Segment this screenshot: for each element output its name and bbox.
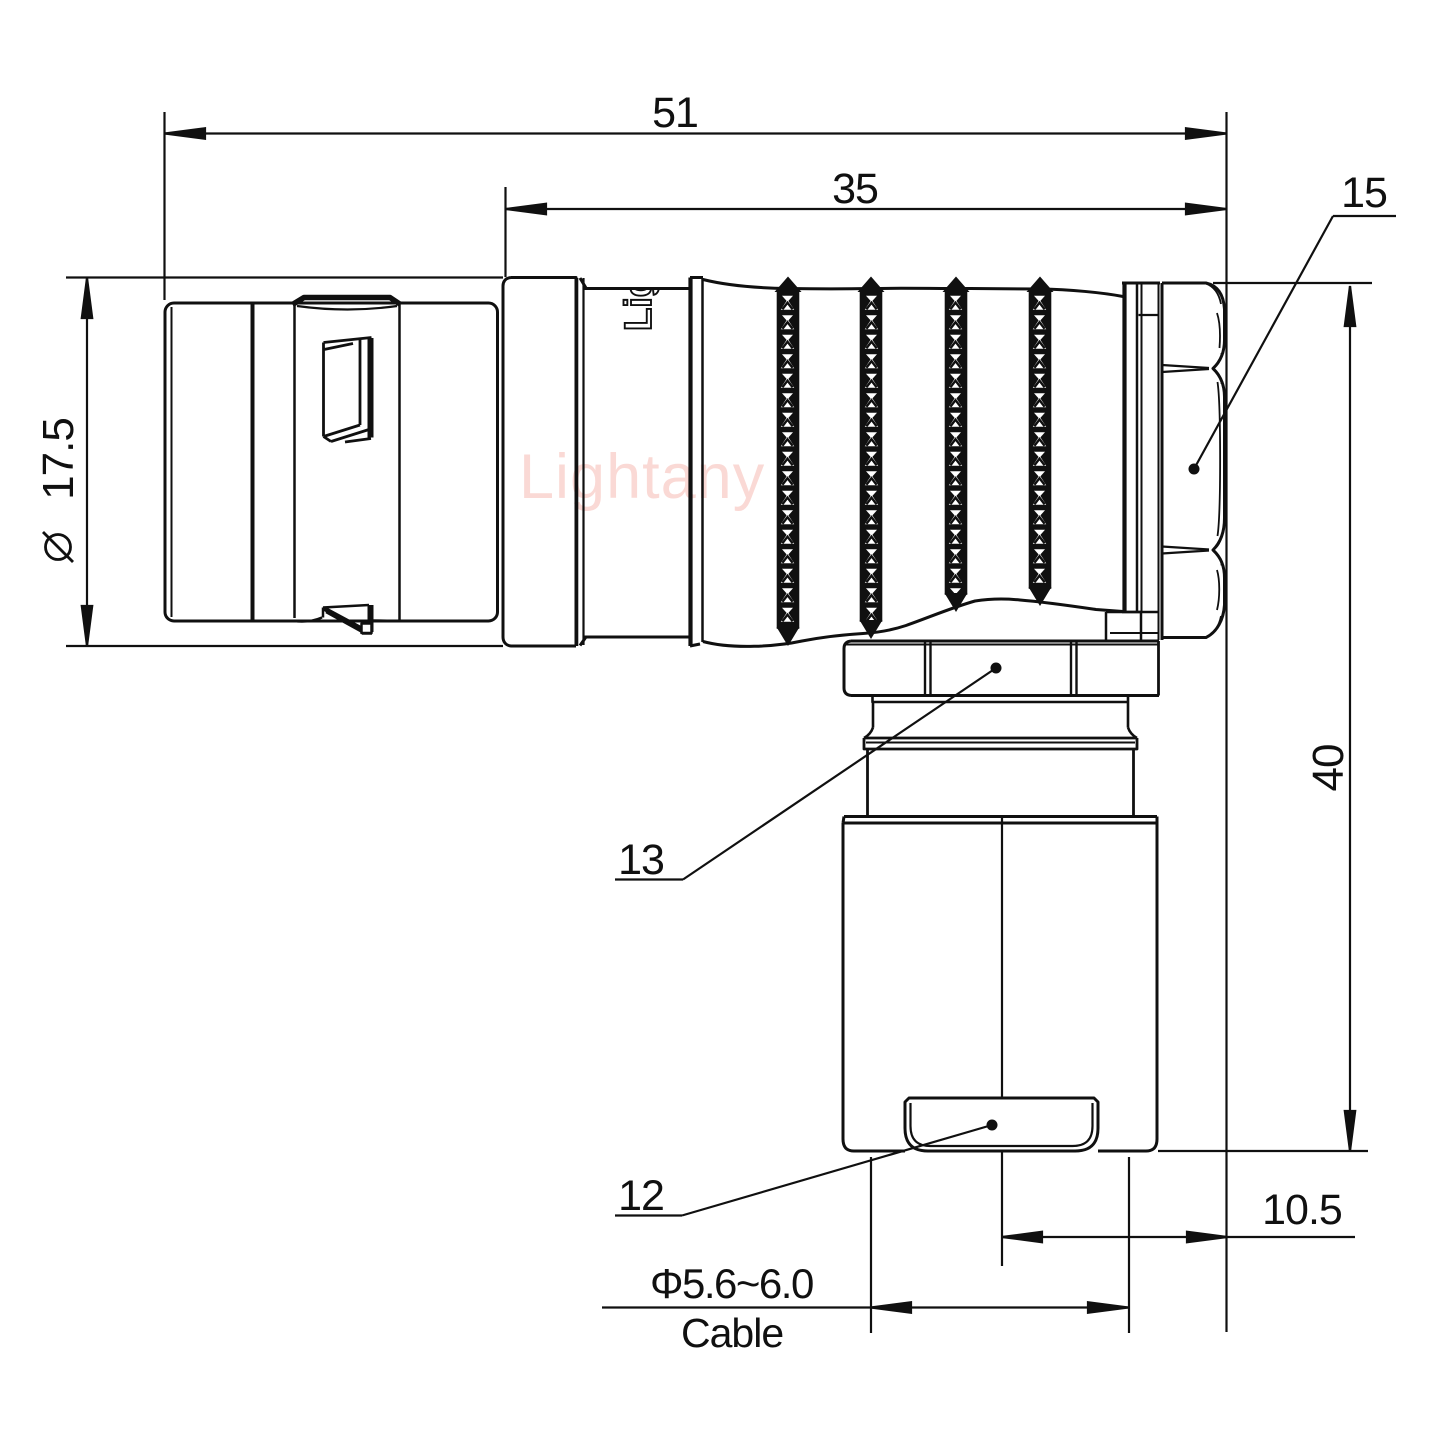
svg-text:Cable: Cable [681,1310,783,1356]
svg-text:35: 35 [832,165,878,213]
svg-text:Lightany: Lightany [519,442,765,512]
svg-text:15: 15 [1341,169,1387,217]
svg-text:40: 40 [1304,745,1353,792]
svg-text:10.5: 10.5 [1262,1186,1342,1234]
svg-text:13: 13 [618,836,664,884]
svg-text:12: 12 [618,1172,664,1220]
svg-text:Φ5.6~6.0: Φ5.6~6.0 [650,1260,813,1307]
svg-text:51: 51 [652,89,698,137]
svg-text:17.5: 17.5 [34,418,83,500]
